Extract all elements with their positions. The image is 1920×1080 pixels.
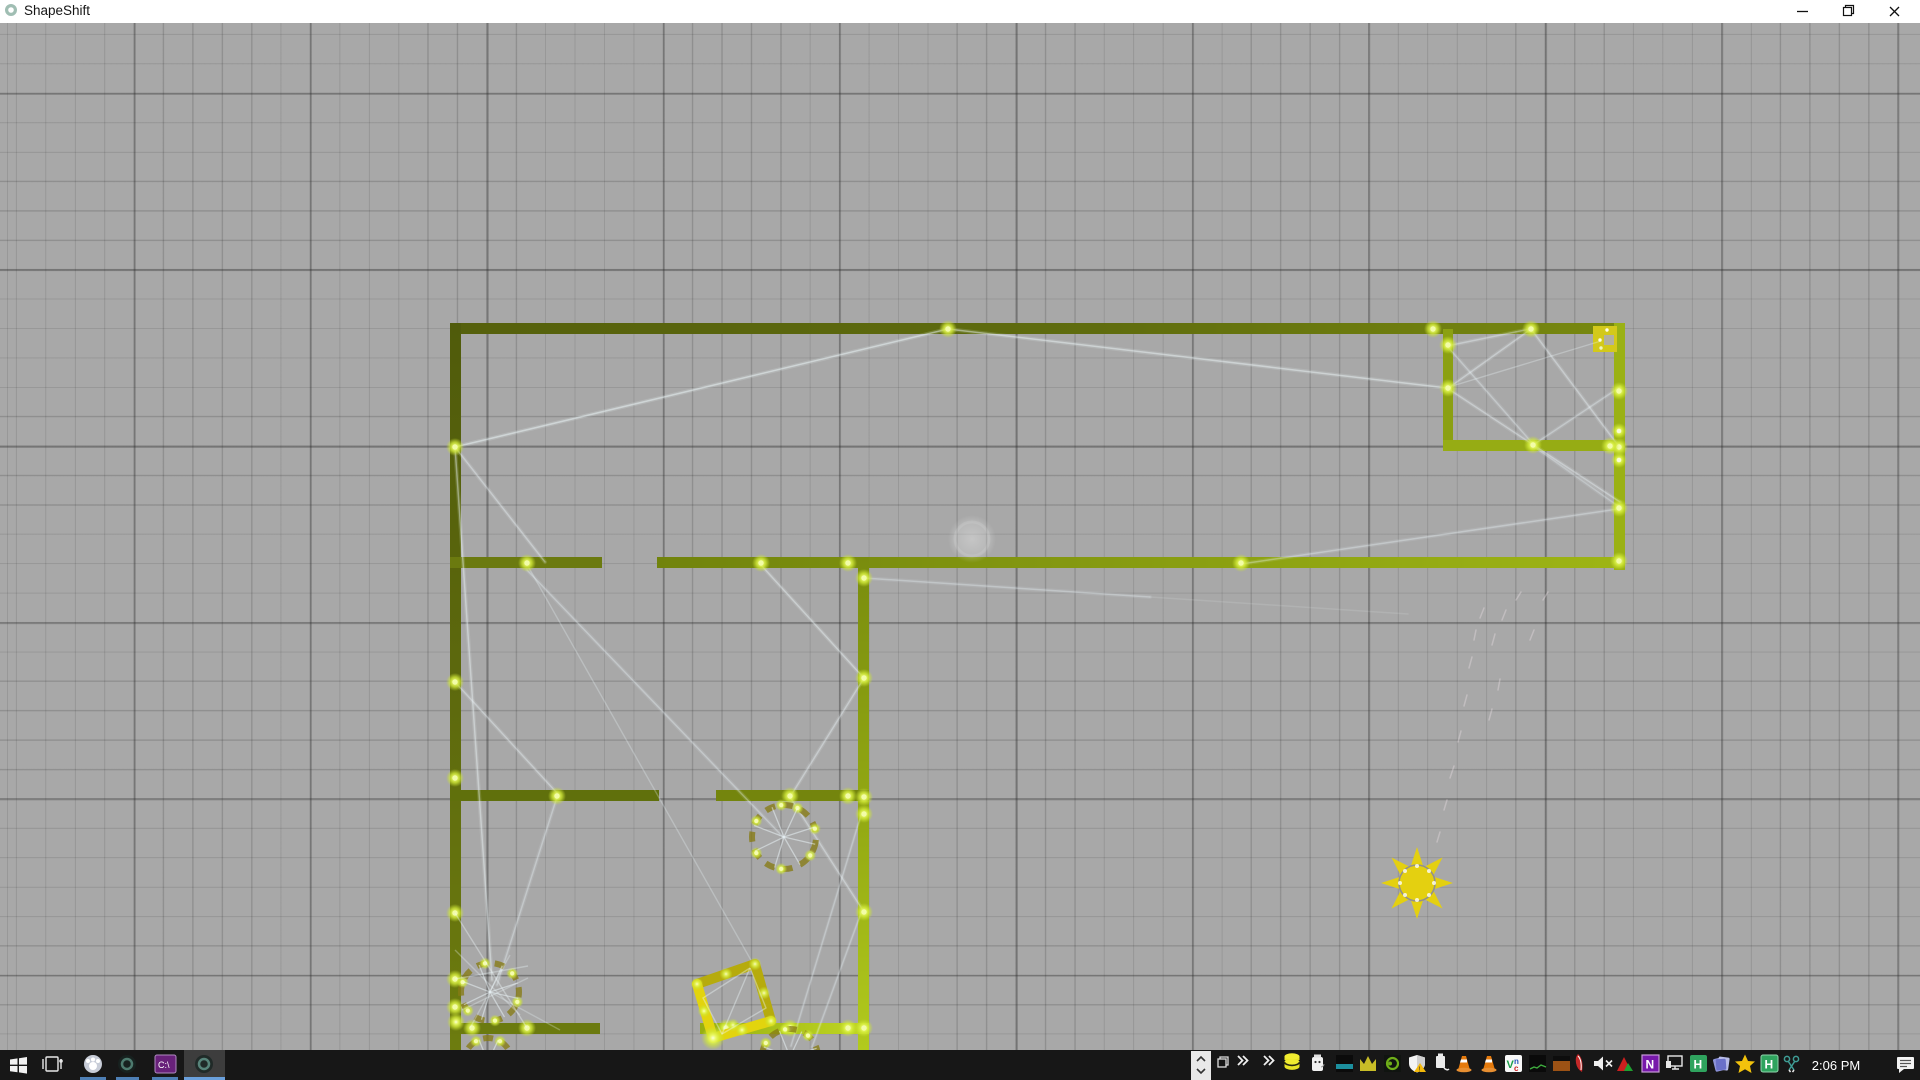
svg-text:H: H	[1765, 1058, 1774, 1072]
svg-text:N: N	[1646, 1058, 1655, 1072]
svg-text:!: !	[1419, 1066, 1421, 1073]
svg-text:H: H	[1694, 1058, 1703, 1072]
svg-text:c: c	[1514, 1064, 1519, 1073]
svg-text:C:\: C:\	[158, 1060, 170, 1070]
